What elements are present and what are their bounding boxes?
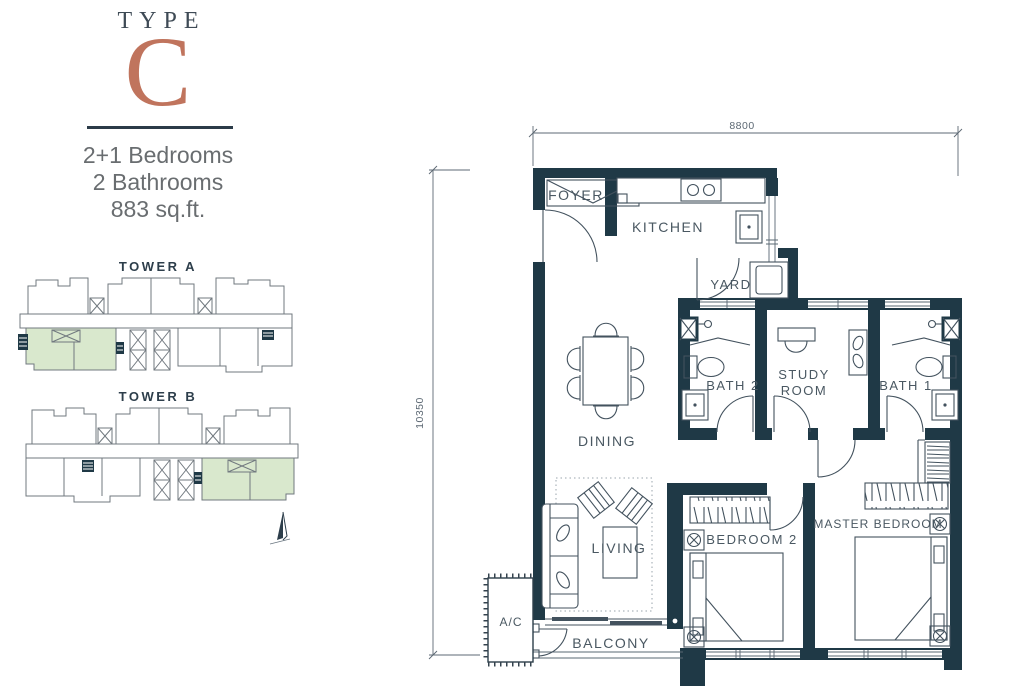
bath1-window [885, 300, 930, 308]
room-dining: DINING [567, 323, 644, 449]
bedroom2-window [706, 650, 800, 658]
lounge-chair-icon [578, 482, 614, 518]
spec-area: 883 sq.ft. [0, 196, 316, 223]
shower-icon [690, 321, 750, 346]
room-kitchen: KITCHEN [617, 178, 765, 243]
room-bath1: BATH 1 [879, 318, 960, 432]
floorplan-drawing: 8800 10350 FOYER [400, 100, 1024, 698]
living-label: LIVING [592, 540, 647, 556]
master-label: MASTER BEDROOM [813, 517, 942, 531]
spec-bathrooms: 2 Bathrooms [0, 169, 316, 196]
balcony-rail [533, 652, 683, 658]
aircon-icon [684, 530, 704, 550]
master-window [828, 650, 942, 658]
stove-icon [681, 179, 721, 201]
study-door-arc [774, 396, 810, 432]
basin-icon [682, 390, 708, 420]
shower-icon [892, 321, 950, 346]
bath2-label: BATH 2 [706, 378, 760, 393]
type-letter: C [0, 22, 316, 122]
washer-icon [750, 262, 788, 298]
dim-width-label: 8800 [729, 120, 754, 132]
sliding-door [545, 617, 667, 625]
north-arrow-icon [264, 506, 300, 552]
ac-ledge: A/C [486, 576, 533, 664]
study-window [808, 300, 868, 308]
wardrobe-icon [865, 440, 950, 509]
cabinet-icon [849, 330, 867, 375]
foyer-label: FOYER [548, 187, 604, 203]
study-label-line2: ROOM [781, 383, 827, 398]
sofa-icon [542, 504, 578, 608]
balcony-label: BALCONY [572, 635, 649, 651]
master-door-arc [818, 440, 855, 477]
duct-shaft-icon [680, 318, 697, 340]
bedroom2-label: BEDROOM 2 [706, 532, 798, 547]
spec-bedrooms: 2+1 Bedrooms [0, 142, 316, 169]
sink-icon [736, 211, 762, 243]
room-study: STUDY ROOM [774, 328, 867, 432]
room-master: MASTER BEDROOM [813, 440, 950, 646]
door-junction [667, 613, 683, 629]
bedroom2-door-arc [770, 497, 803, 530]
wardrobe-icon [690, 497, 770, 523]
yard-label: YARD [710, 277, 751, 292]
title-divider [87, 126, 233, 129]
tower-b-unit-highlight [202, 458, 294, 500]
bath2-window [700, 300, 755, 308]
kitchen-label: KITCHEN [632, 219, 704, 235]
room-bedroom2: BEDROOM 2 [684, 497, 803, 647]
bath1-door-arc [887, 396, 923, 432]
dining-table-icon [567, 323, 644, 419]
bath1-label: BATH 1 [879, 378, 933, 393]
ac-label: A/C [499, 615, 522, 629]
dining-label: DINING [578, 433, 636, 449]
room-living: LIVING [542, 478, 652, 611]
lounge-chair-icon [616, 488, 652, 524]
keyplan-tower-a [12, 272, 300, 378]
floorplan-brochure-page: TYPE C 2+1 Bedrooms 2 Bathrooms 883 sq.f… [0, 0, 1024, 698]
desk-chair-icon [778, 328, 815, 352]
study-label-line1: STUDY [778, 367, 830, 382]
room-bath2: BATH 2 [680, 318, 760, 432]
bed-icon [855, 537, 947, 640]
room-yard: YARD [697, 258, 788, 300]
unit-specs: 2+1 Bedrooms 2 Bathrooms 883 sq.ft. [0, 142, 316, 223]
dim-height-label: 10350 [414, 397, 426, 429]
entry-door-arc [543, 210, 597, 262]
basin-icon [932, 390, 958, 420]
bath2-door-arc [717, 396, 753, 432]
duct-shaft-icon [943, 318, 960, 340]
room-balcony: BALCONY A/C [486, 576, 683, 664]
keyplan-tower-b [18, 402, 306, 508]
